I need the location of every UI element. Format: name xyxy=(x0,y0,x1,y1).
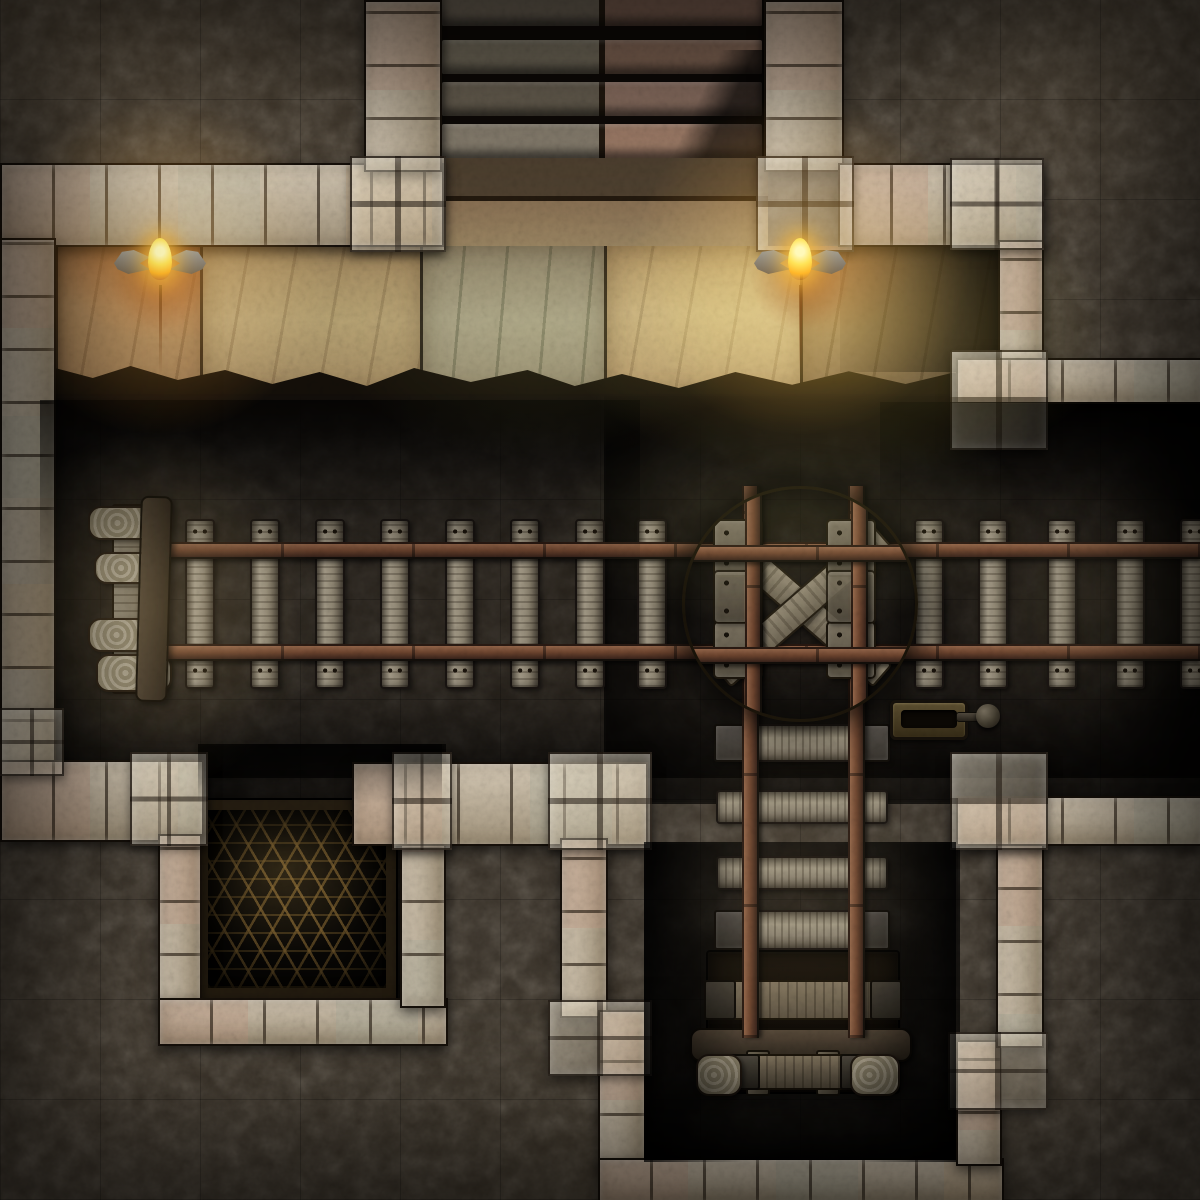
turntable-rail xyxy=(745,489,762,719)
stair-shadow xyxy=(650,50,768,162)
stair-landing-floor xyxy=(436,158,768,252)
wall-corner xyxy=(950,752,1048,850)
torch-drip xyxy=(159,285,162,375)
turntable-rail xyxy=(851,489,868,719)
rail xyxy=(150,542,1200,559)
stone-wall xyxy=(598,1158,1004,1200)
hall-slab xyxy=(200,246,423,394)
switch-lever[interactable] xyxy=(890,698,1000,738)
stone-wall xyxy=(996,836,1044,1048)
wall-corner xyxy=(548,1000,652,1076)
cart-log-end xyxy=(850,1054,900,1096)
cart-top-plank xyxy=(704,980,902,1020)
rail xyxy=(150,644,1200,661)
lever-slot xyxy=(901,710,957,728)
stone-wall xyxy=(560,838,608,1018)
stone-wall xyxy=(158,834,202,1008)
wall-corner xyxy=(350,156,446,252)
wall-torch xyxy=(110,230,210,350)
wall-corner xyxy=(392,752,452,850)
hall-edge-shadow xyxy=(55,394,1000,452)
wall-corner xyxy=(950,350,1048,450)
wall-corner xyxy=(948,1032,1048,1110)
turntable-rail xyxy=(685,647,915,664)
torch-flame-icon xyxy=(788,238,812,280)
turntable-rail xyxy=(685,545,915,562)
stone-wall xyxy=(0,238,56,774)
wall-corner xyxy=(130,752,208,846)
mine-dungeon-map xyxy=(0,0,1200,1200)
wall-torch xyxy=(750,230,850,350)
wall-corner xyxy=(0,708,64,776)
buffer-stop xyxy=(135,496,173,703)
torch-flame-icon xyxy=(148,238,172,280)
stair-step xyxy=(442,0,762,26)
torch-drip xyxy=(799,285,802,375)
mine-cart[interactable] xyxy=(676,928,920,1112)
stone-wall xyxy=(764,0,844,172)
stone-wall xyxy=(998,240,1044,366)
lever-knob xyxy=(976,704,1000,728)
stone-wall xyxy=(364,0,442,172)
turntable[interactable] xyxy=(682,486,918,722)
cart-log-end xyxy=(696,1054,742,1096)
wall-corner xyxy=(950,158,1044,250)
hall-slab xyxy=(420,246,607,394)
wall-corner xyxy=(548,752,652,850)
